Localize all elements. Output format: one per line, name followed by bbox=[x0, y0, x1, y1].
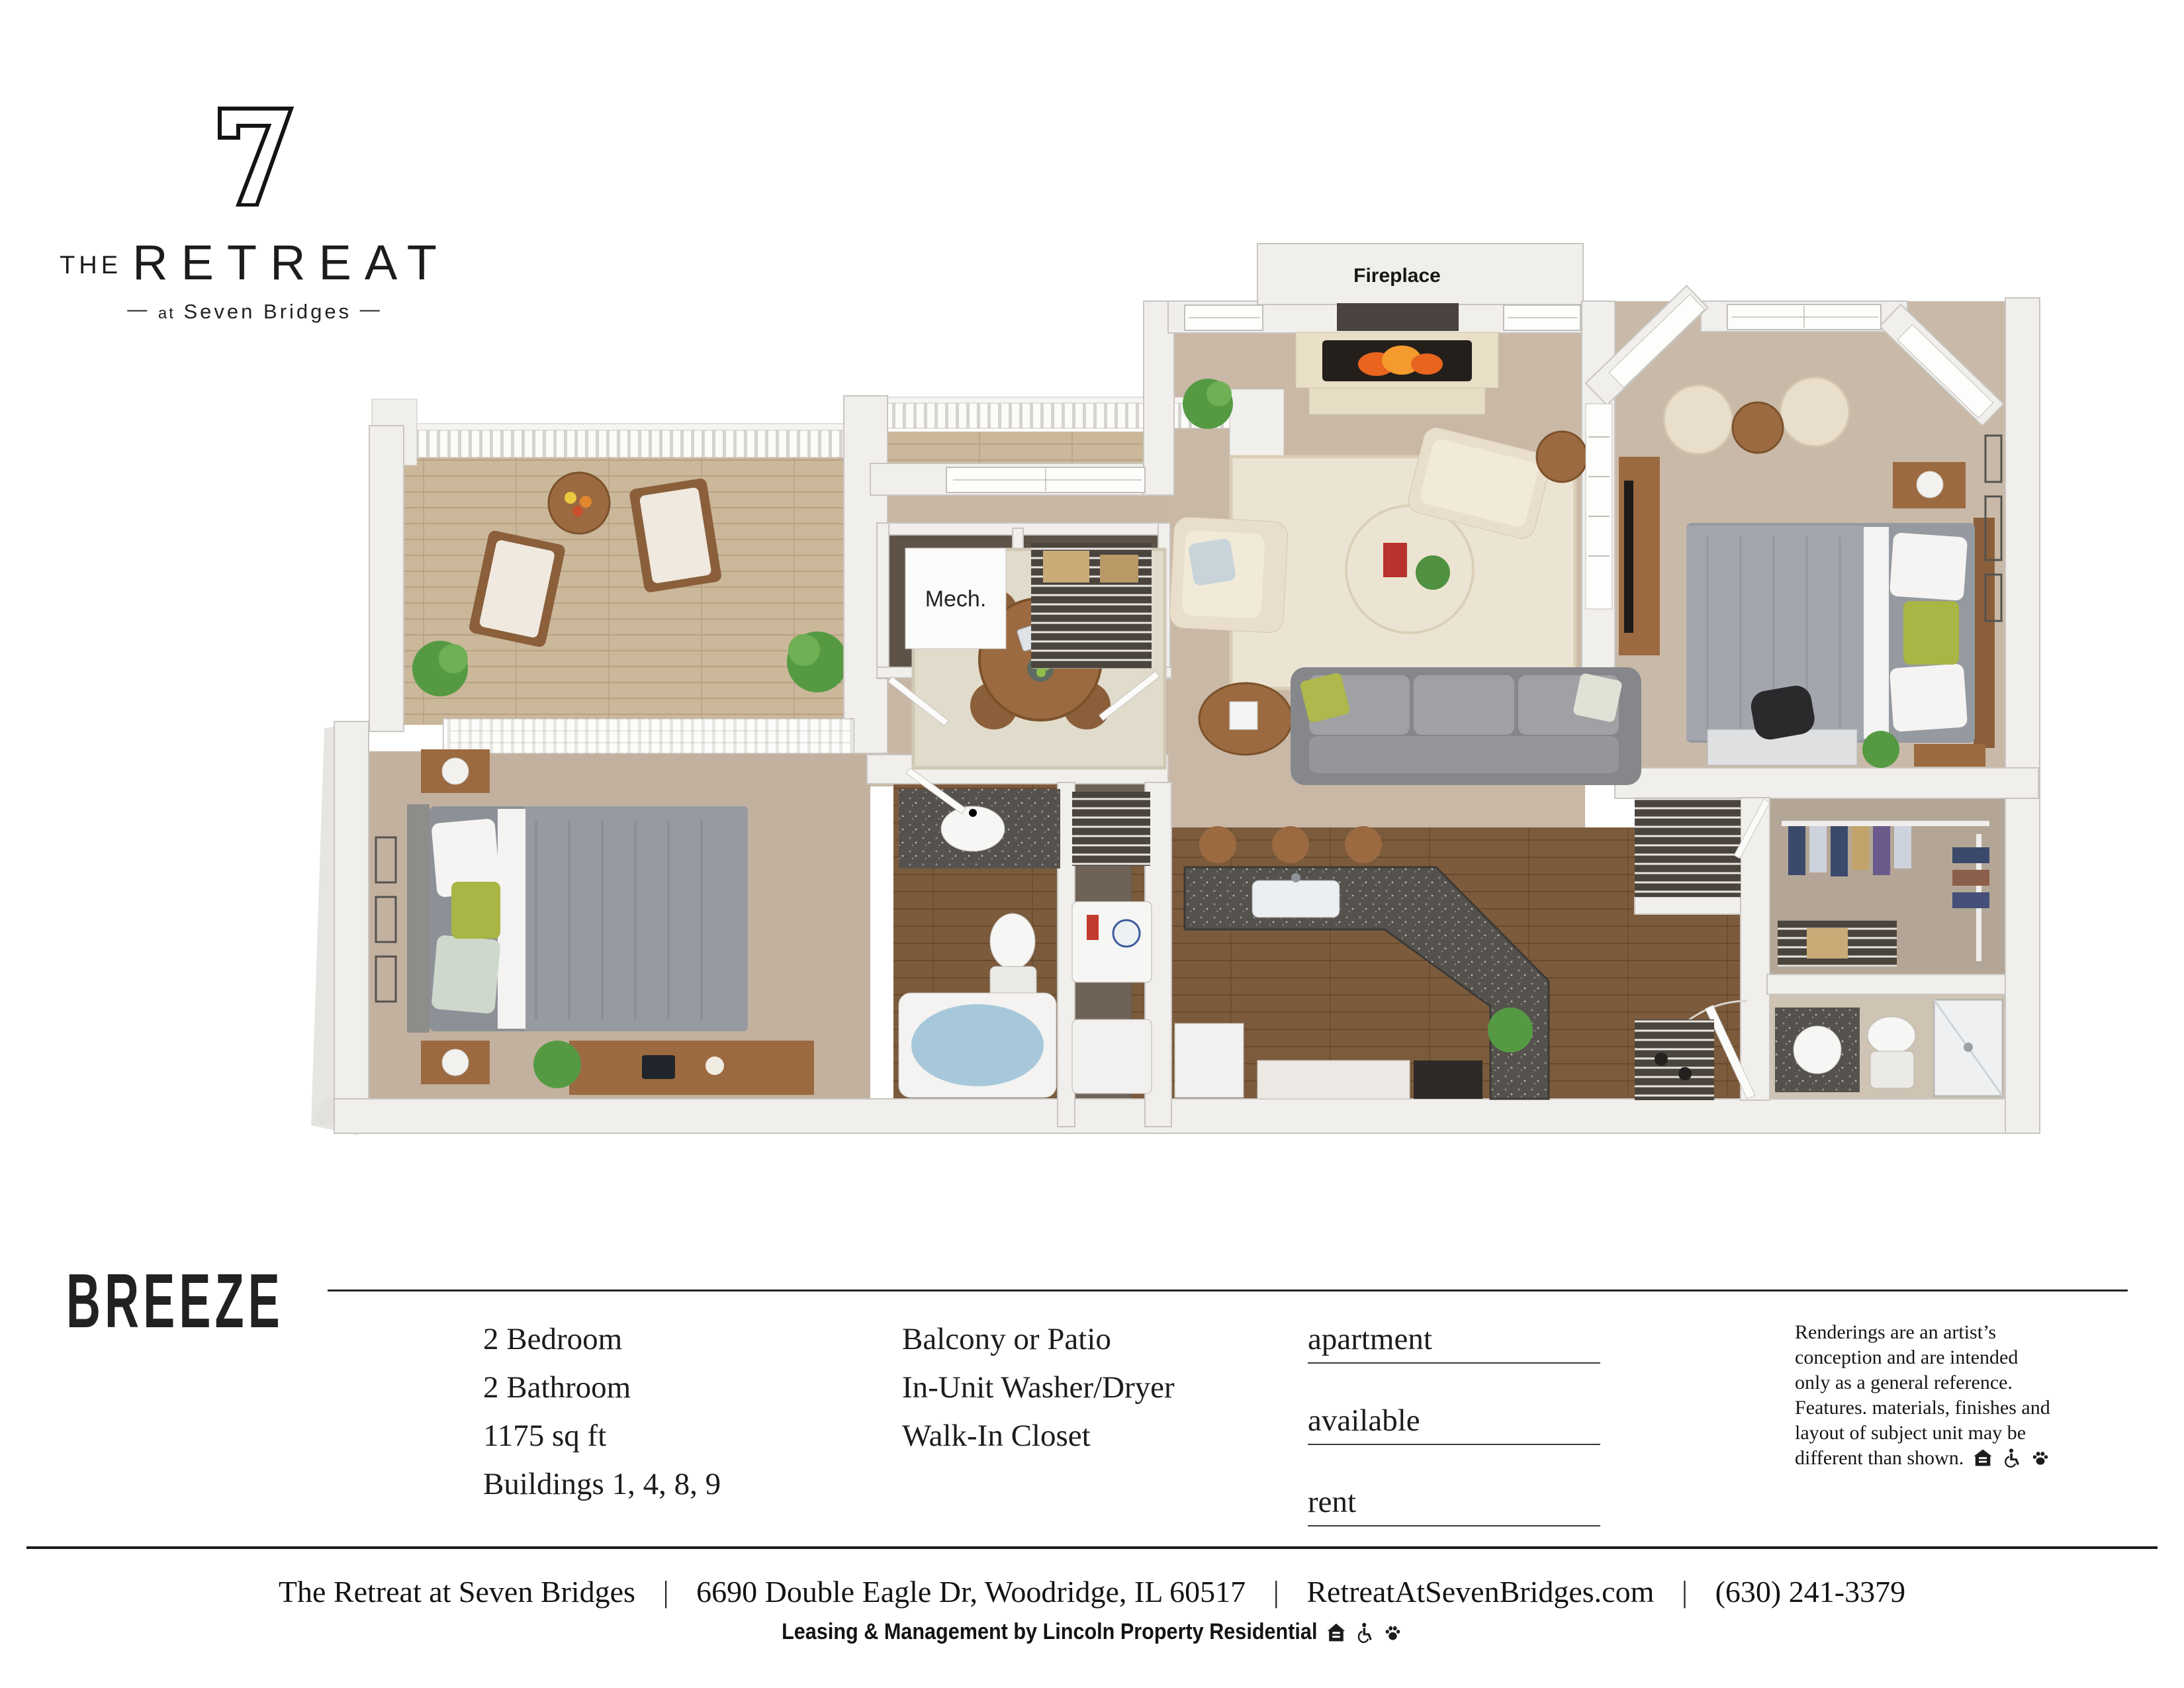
balcony-pillar bbox=[1230, 389, 1284, 463]
plant bbox=[533, 1041, 581, 1088]
equal-housing-icon bbox=[1327, 1622, 1346, 1643]
spec-list: 2 Bedroom 2 Bathroom 1175 sq ft Building… bbox=[483, 1321, 721, 1515]
tagline-dash-left: — bbox=[127, 299, 150, 320]
footer-phone[interactable]: (630) 241-3379 bbox=[1715, 1575, 1905, 1609]
desk bbox=[569, 1041, 814, 1095]
cabinets bbox=[1257, 1060, 1410, 1099]
available-field-label: available bbox=[1308, 1403, 1420, 1444]
paw-icon bbox=[2030, 1448, 2050, 1468]
pillow bbox=[431, 935, 500, 1014]
apartment-field[interactable]: apartment bbox=[1308, 1321, 1600, 1364]
pillow bbox=[1889, 532, 1968, 601]
plant bbox=[1488, 1008, 1533, 1053]
footer-separator: | bbox=[1682, 1574, 1688, 1609]
dryer bbox=[1072, 1019, 1152, 1094]
feature-list: Balcony or Patio In-Unit Washer/Dryer Wa… bbox=[902, 1321, 1175, 1466]
spec-sqft: 1175 sq ft bbox=[483, 1418, 721, 1466]
side-table bbox=[1537, 432, 1587, 482]
feature-walkin-closet: Walk-In Closet bbox=[902, 1418, 1175, 1466]
footer-divider bbox=[26, 1546, 2158, 1549]
disclaimer: Renderings are an artist’s conception an… bbox=[1795, 1320, 2054, 1471]
patio-table bbox=[549, 473, 610, 534]
footer-website[interactable]: RetreatAtSevenBridges.com bbox=[1306, 1575, 1654, 1609]
rent-field-label: rent bbox=[1308, 1484, 1356, 1525]
floor-plan-rendering: Fireplace bbox=[285, 238, 2045, 1139]
toilet bbox=[1868, 1017, 1915, 1054]
footer-separator: | bbox=[1273, 1574, 1279, 1609]
plan-title: BREEZE bbox=[66, 1256, 284, 1345]
kitchen-sink bbox=[1252, 880, 1340, 917]
accessibility-icon bbox=[2001, 1448, 2021, 1468]
available-field[interactable]: available bbox=[1308, 1403, 1600, 1445]
brand-the: THE bbox=[60, 252, 122, 280]
accent-chair bbox=[1780, 377, 1849, 446]
coat-closet bbox=[1635, 798, 1741, 897]
living-room bbox=[1169, 404, 1641, 785]
balcony-floor bbox=[400, 457, 857, 725]
accessibility-icon bbox=[1355, 1622, 1374, 1643]
bar-stool bbox=[1345, 826, 1382, 863]
spec-bathrooms: 2 Bathroom bbox=[483, 1370, 721, 1418]
round-table bbox=[1733, 402, 1783, 453]
tv bbox=[1337, 303, 1459, 331]
disclaimer-icons bbox=[1969, 1447, 2050, 1469]
tagline-at: at bbox=[158, 305, 175, 322]
sofa bbox=[1291, 667, 1641, 785]
apartment-field-label: apartment bbox=[1308, 1321, 1432, 1362]
nightstand bbox=[1914, 744, 1985, 767]
laundry-shelf bbox=[1072, 792, 1150, 866]
feature-washer-dryer: In-Unit Washer/Dryer bbox=[902, 1370, 1175, 1418]
accent-pillow bbox=[1903, 601, 1959, 665]
mech-label: Mech. bbox=[925, 586, 987, 612]
plant bbox=[1862, 731, 1899, 768]
accent-pillow bbox=[451, 882, 500, 939]
spec-bedrooms: 2 Bedroom bbox=[483, 1321, 721, 1370]
shoe-closet bbox=[1635, 1019, 1714, 1100]
fridge bbox=[1175, 1023, 1244, 1098]
leasing-text: Leasing & Management by Lincoln Property… bbox=[782, 1619, 1317, 1644]
seven-logo-icon bbox=[214, 106, 295, 207]
deck-chair bbox=[629, 478, 722, 594]
toilet bbox=[990, 914, 1035, 969]
footer-property-name: The Retreat at Seven Bridges bbox=[279, 1575, 635, 1609]
headboard bbox=[1974, 518, 1995, 748]
stove bbox=[1414, 1060, 1482, 1099]
pillow bbox=[1889, 663, 1968, 732]
footer-address: 6690 Double Eagle Dr, Woodridge, IL 6051… bbox=[696, 1575, 1246, 1609]
footer-contact-line: The Retreat at Seven Bridges | 6690 Doub… bbox=[0, 1574, 2184, 1609]
spec-buildings: Buildings 1, 4, 8, 9 bbox=[483, 1466, 721, 1515]
equal-housing-icon bbox=[1973, 1448, 1993, 1468]
feature-balcony: Balcony or Patio bbox=[902, 1321, 1175, 1370]
fill-in-fields: apartment available rent bbox=[1308, 1321, 1600, 1566]
paw-icon bbox=[1383, 1622, 1402, 1643]
footer-leasing-line: Leasing & Management by Lincoln Property… bbox=[0, 1619, 2184, 1645]
rent-field[interactable]: rent bbox=[1308, 1484, 1600, 1526]
balcony-railing bbox=[384, 427, 855, 457]
footer-separator: | bbox=[662, 1574, 668, 1609]
bar-stool bbox=[1272, 826, 1309, 863]
wall-art bbox=[1586, 404, 1612, 609]
headboard bbox=[407, 804, 430, 1033]
title-divider bbox=[328, 1289, 2128, 1291]
fireplace-label: Fireplace bbox=[1353, 265, 1441, 287]
flyer-page: THE RETREAT — at Seven Bridges — bbox=[0, 0, 2184, 1688]
accent-chair bbox=[1664, 385, 1733, 454]
washer bbox=[1072, 902, 1152, 982]
armchair bbox=[1169, 516, 1289, 633]
bar-stool bbox=[1199, 826, 1236, 863]
